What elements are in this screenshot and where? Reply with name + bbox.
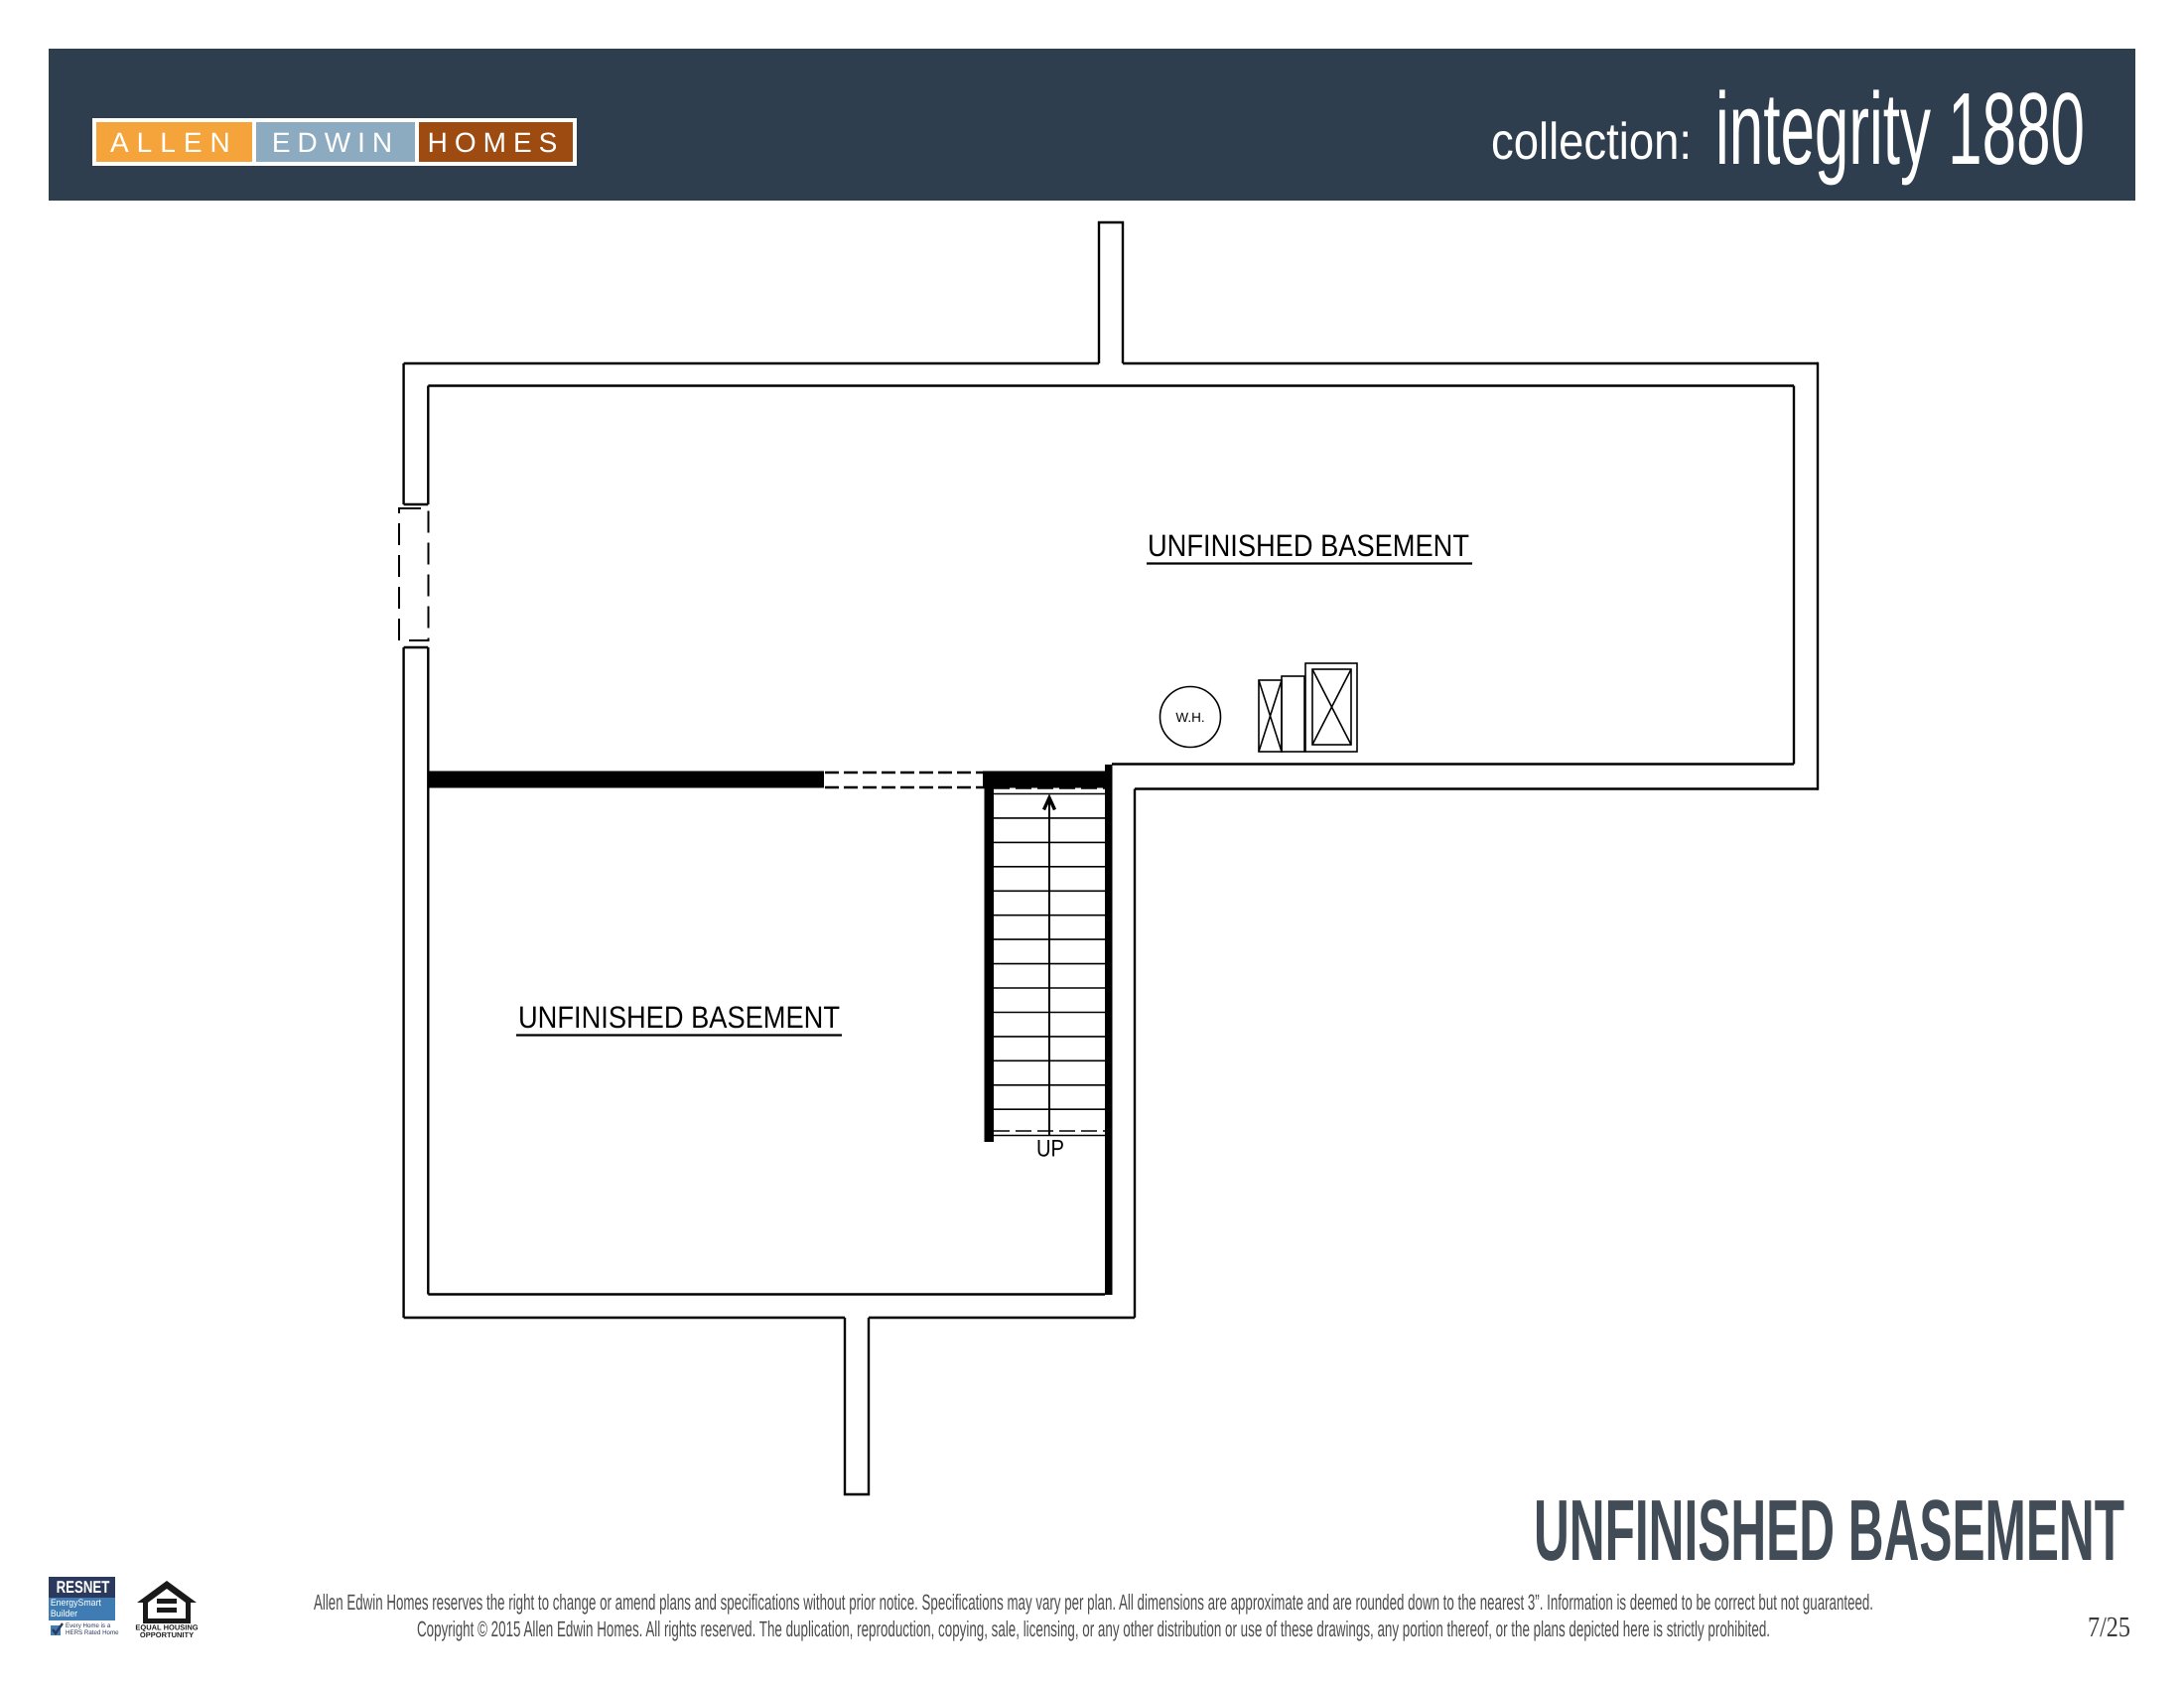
- svg-text:Allen Edwin Homes reserves the: Allen Edwin Homes reserves the right to …: [314, 1590, 1873, 1615]
- svg-text:7/25: 7/25: [2088, 1612, 2130, 1643]
- svg-text:W.H.: W.H.: [1175, 710, 1204, 725]
- svg-text:Copyright © 2015 Allen Edwin H: Copyright © 2015 Allen Edwin Homes. All …: [417, 1617, 1770, 1641]
- svg-text:UNFINISHED BASEMENT: UNFINISHED BASEMENT: [1534, 1482, 2124, 1579]
- svg-text:UNFINISHED BASEMENT: UNFINISHED BASEMENT: [518, 1000, 840, 1035]
- svg-text:UP: UP: [1036, 1136, 1064, 1163]
- svg-text:UNFINISHED BASEMENT: UNFINISHED BASEMENT: [1148, 528, 1469, 563]
- svg-text:OPPORTUNITY: OPPORTUNITY: [140, 1630, 194, 1638]
